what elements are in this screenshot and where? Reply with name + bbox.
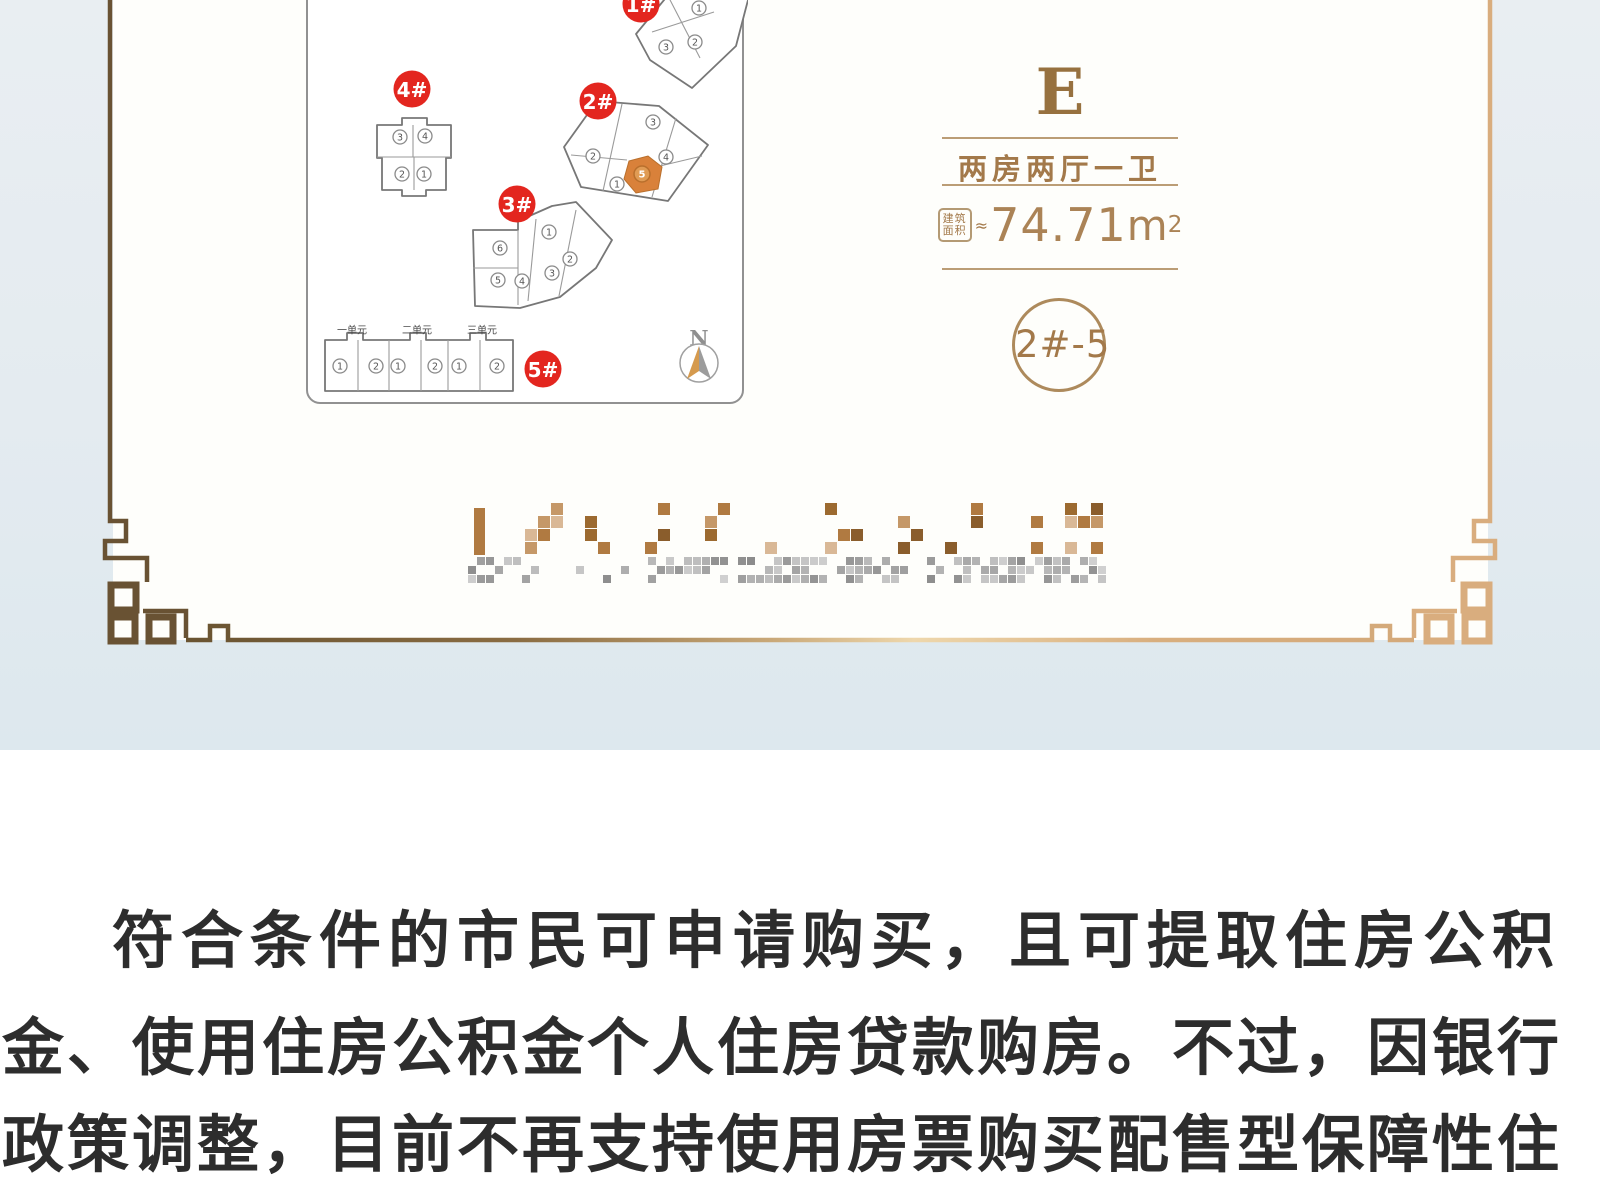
censored-pixel	[774, 566, 782, 574]
censored-pixel	[981, 566, 989, 574]
censored-pixel	[765, 542, 777, 554]
frame-right-knot-square	[1427, 617, 1451, 641]
censored-pixel	[585, 516, 597, 528]
article-screenshot: 1321#324152#6154323#34214#1212125#一单元二单元…	[0, 0, 1600, 1200]
censored-pixel	[792, 575, 800, 583]
censored-pixel	[846, 557, 854, 565]
censored-pixel	[990, 575, 998, 583]
censored-pixel	[882, 575, 890, 583]
censored-pixel	[846, 566, 854, 574]
censored-pixel	[684, 566, 692, 574]
svg-text:4: 4	[519, 276, 525, 287]
censored-pixel	[855, 575, 863, 583]
svg-text:2: 2	[399, 169, 405, 180]
censored-pixel	[1062, 566, 1070, 574]
censored-pixel	[810, 575, 818, 583]
svg-text:2: 2	[590, 151, 596, 162]
censored-pixel	[971, 516, 983, 528]
censored-pixel	[1065, 503, 1077, 515]
censored-pixel	[954, 557, 962, 565]
unit-type-letter: E	[940, 58, 1180, 128]
censored-pixel	[990, 557, 998, 565]
censored-pixel	[1078, 516, 1090, 528]
censored-pixel	[963, 575, 971, 583]
censored-pixel	[1071, 575, 1079, 583]
area-badge-line2: 面积	[943, 225, 967, 237]
censored-pixel	[1098, 575, 1106, 583]
censored-pixel	[538, 529, 550, 541]
frame-bottom-line	[186, 626, 1414, 640]
article-line: 金、使用住房公积金个人住房贷款购房。不过，因银行	[2, 1015, 1562, 1081]
censored-pixel	[504, 557, 512, 565]
area-value: 74.71	[990, 198, 1127, 252]
svg-text:3: 3	[650, 117, 656, 128]
censored-pixel	[898, 542, 910, 554]
censored-pixel	[720, 557, 728, 565]
frame-right-line	[1453, 0, 1495, 582]
svg-text:1: 1	[546, 227, 552, 238]
approx-symbol: ≈	[975, 216, 988, 235]
censored-pixel	[720, 575, 728, 583]
censored-pixel	[898, 516, 910, 528]
censored-pixel	[999, 575, 1007, 583]
svg-text:1: 1	[337, 361, 343, 372]
censored-pixel	[675, 566, 683, 574]
censored-pixel	[837, 566, 845, 574]
censored-pixel	[765, 575, 773, 583]
censored-pixel	[1089, 566, 1097, 574]
svg-text:3#: 3#	[502, 193, 533, 217]
censored-pixel	[705, 516, 717, 528]
svg-text:3: 3	[663, 42, 669, 53]
censored-pixel	[648, 557, 656, 565]
censored-pixel	[1031, 516, 1043, 528]
censored-pixel	[747, 557, 755, 565]
censored-pixel	[765, 566, 773, 574]
censored-pixel	[774, 557, 782, 565]
svg-text:3: 3	[549, 268, 555, 279]
censored-pixel	[598, 542, 610, 554]
censored-pixel	[891, 575, 899, 583]
censored-pixel	[1044, 575, 1052, 583]
censored-pixel	[1044, 557, 1052, 565]
censored-pixel	[1053, 557, 1061, 565]
censored-pixel	[1091, 516, 1103, 528]
censored-pixel	[468, 566, 476, 574]
censored-pixel	[783, 575, 791, 583]
area-unit: m	[1127, 201, 1168, 250]
censored-pixel	[792, 566, 800, 574]
svg-text:1: 1	[395, 361, 401, 372]
building-outline-3#	[473, 202, 612, 308]
censored-pixel	[477, 557, 485, 565]
censored-pixel	[702, 566, 710, 574]
censored-pixel	[783, 557, 791, 565]
censored-pixel	[774, 575, 782, 583]
censored-pixel	[486, 575, 494, 583]
censored-pixel	[891, 566, 899, 574]
censored-pixel	[810, 557, 818, 565]
svg-text:2: 2	[494, 361, 500, 372]
censored-pixel	[999, 557, 1007, 565]
svg-text:4#: 4#	[397, 78, 428, 102]
divider-line	[942, 184, 1178, 186]
frame-left-knot-square	[149, 617, 173, 641]
censored-pixel	[981, 575, 989, 583]
censored-pixel	[927, 557, 935, 565]
censored-pixel	[525, 529, 537, 541]
censored-pixel	[801, 575, 809, 583]
gold-frame	[0, 0, 1600, 750]
censored-pixel	[1008, 575, 1016, 583]
censored-pixel	[1026, 566, 1034, 574]
censored-pixel	[693, 566, 701, 574]
floor-area-badge: 建筑 面积	[938, 208, 972, 242]
censored-pixel	[522, 575, 530, 583]
censored-pixel	[702, 557, 710, 565]
censored-pixel	[1017, 575, 1025, 583]
censored-pixel	[825, 503, 837, 515]
censored-pixel	[738, 557, 746, 565]
censored-pixel	[945, 542, 957, 554]
site-plan: 1321#324152#6154323#34214#1212125#一单元二单元…	[306, 0, 748, 406]
svg-text:3: 3	[397, 132, 403, 143]
censored-pixel	[684, 557, 692, 565]
censored-pixel	[1053, 566, 1061, 574]
censored-pixel	[1017, 566, 1025, 574]
censored-pixel	[705, 529, 717, 541]
censored-pixel	[658, 529, 670, 541]
censored-pixel	[927, 575, 935, 583]
area-superscript: 2	[1168, 212, 1183, 238]
svg-text:2: 2	[432, 361, 438, 372]
censored-pixel	[855, 557, 863, 565]
censored-pixel	[990, 566, 998, 574]
svg-text:2: 2	[692, 37, 698, 48]
censored-pixel	[801, 566, 809, 574]
svg-text:4: 4	[663, 152, 669, 163]
censored-pixel	[486, 557, 494, 565]
censored-pixel	[864, 566, 872, 574]
censored-pixel	[551, 503, 563, 515]
frame-left-line	[105, 0, 147, 582]
censored-pixel	[1017, 557, 1025, 565]
svg-text:三单元: 三单元	[467, 325, 497, 337]
censored-pixel	[756, 575, 764, 583]
divider-line	[942, 268, 1178, 270]
censored-pixel	[648, 575, 656, 583]
area-row: 建筑 面积 ≈ 74.71 m 2	[940, 198, 1180, 252]
censored-pixel	[911, 529, 923, 541]
censored-pixel	[851, 529, 863, 541]
censored-pixel	[873, 566, 881, 574]
svg-text:1#: 1#	[626, 0, 657, 17]
censored-pixel	[819, 557, 827, 565]
censored-pixel	[477, 575, 485, 583]
censored-pixel	[711, 557, 719, 565]
censored-pixel	[474, 508, 485, 555]
censored-pixel	[657, 566, 665, 574]
svg-text:1: 1	[456, 361, 462, 372]
censored-pixel	[693, 557, 701, 565]
article-line: 政策调整，目前不再支持使用房票购买配售型保障性住	[2, 1112, 1562, 1178]
divider-line	[942, 137, 1178, 139]
censored-pixel	[971, 503, 983, 515]
censored-pixel	[1062, 557, 1070, 565]
svg-text:一单元: 一单元	[337, 325, 367, 337]
svg-text:1: 1	[696, 3, 702, 14]
svg-text:2: 2	[567, 254, 573, 265]
svg-text:5#: 5#	[528, 358, 559, 382]
censored-pixel	[900, 566, 908, 574]
censored-pixel	[972, 557, 980, 565]
censored-pixel	[531, 566, 539, 574]
svg-text:1: 1	[421, 169, 427, 180]
frame-left-knot-square	[111, 617, 135, 641]
censored-pixel	[738, 575, 746, 583]
censored-pixel	[1008, 557, 1016, 565]
censored-pixel	[963, 566, 971, 574]
frame-left-knot-square	[111, 585, 136, 610]
unit-info-panel: E 两房两厅一卫 建筑 面积 ≈ 74.71 m 2 2#-5	[940, 0, 1180, 420]
censored-pixel	[513, 557, 521, 565]
censored-pixel	[846, 575, 854, 583]
svg-text:2: 2	[373, 361, 379, 372]
censored-pixel	[538, 516, 550, 528]
censored-pixel	[551, 516, 563, 528]
censored-pixel	[954, 575, 962, 583]
censored-pixel	[658, 503, 670, 515]
censored-pixel	[882, 557, 890, 565]
censored-pixel	[645, 542, 657, 554]
censored-pixel	[747, 575, 755, 583]
censored-pixel	[666, 566, 674, 574]
censored-pixel	[1091, 542, 1103, 554]
frame-right-knot-square	[1464, 585, 1489, 610]
article-line: 符合条件的市民可申请购买，且可提取住房公积	[112, 908, 1561, 974]
unit-code-circle: 2#-5	[1012, 298, 1106, 392]
censored-pixel	[1035, 557, 1043, 565]
svg-text:4: 4	[422, 131, 428, 142]
frame-right-knot-square	[1465, 617, 1489, 641]
censored-pixel	[1065, 542, 1077, 554]
censored-pixel	[1089, 557, 1097, 565]
censored-pixel	[1031, 542, 1043, 554]
censored-pixel	[1053, 575, 1061, 583]
censored-pixel	[621, 566, 629, 574]
censored-pixel	[576, 566, 584, 574]
svg-text:6: 6	[497, 243, 503, 254]
censored-pixel	[855, 566, 863, 574]
censored-pixel	[838, 529, 850, 541]
censored-pixel	[468, 575, 476, 583]
censored-pixel	[936, 566, 944, 574]
svg-text:5: 5	[495, 275, 501, 286]
censored-pixel	[819, 575, 827, 583]
censored-pixel	[1008, 566, 1016, 574]
censored-pixel	[1044, 566, 1052, 574]
svg-text:1: 1	[614, 179, 620, 190]
svg-text:二单元: 二单元	[402, 325, 432, 337]
censored-pixel	[603, 575, 611, 583]
svg-text:5: 5	[639, 170, 646, 181]
censored-pixel	[718, 503, 730, 515]
unit-type-name: 两房两厅一卫	[940, 146, 1180, 188]
building-outline-5#	[325, 333, 513, 391]
svg-text:2#: 2#	[583, 90, 614, 114]
censored-pixel	[495, 566, 503, 574]
censored-pixel	[825, 542, 837, 554]
censored-pixel	[1080, 575, 1088, 583]
censored-pixel	[963, 557, 971, 565]
censored-pixel	[801, 557, 809, 565]
censored-pixel	[1065, 516, 1077, 528]
censored-pixel	[1091, 503, 1103, 515]
censored-pixel	[585, 529, 597, 541]
censored-pixel	[864, 557, 872, 565]
censored-pixel	[525, 542, 537, 554]
censored-pixel	[792, 557, 800, 565]
promo-image-section: 1321#324152#6154323#34214#1212125#一单元二单元…	[0, 0, 1600, 750]
censored-pixel	[1098, 566, 1106, 574]
censored-pixel	[1080, 557, 1088, 565]
censored-pixel	[666, 557, 674, 565]
unit-code: 2#-5	[1015, 323, 1110, 366]
